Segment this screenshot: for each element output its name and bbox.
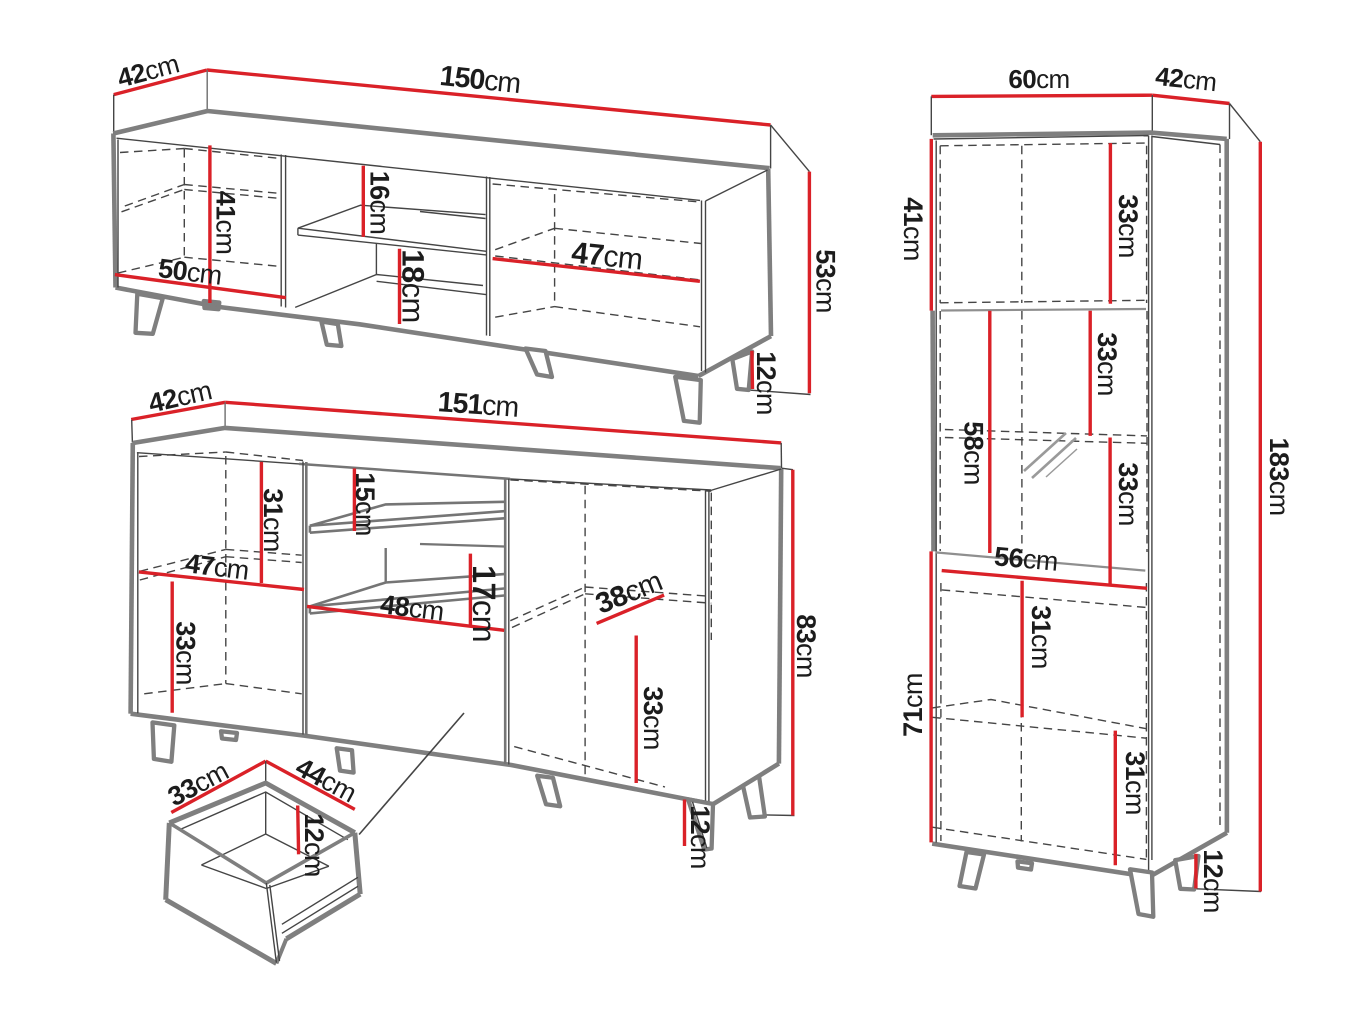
svg-text:16cm: 16cm <box>365 171 395 235</box>
svg-text:33cm: 33cm <box>638 686 668 750</box>
svg-text:71cm: 71cm <box>898 673 928 737</box>
svg-text:41cm: 41cm <box>898 197 928 261</box>
svg-text:31cm: 31cm <box>1026 605 1056 669</box>
svg-text:83cm: 83cm <box>791 614 821 678</box>
svg-text:12cm: 12cm <box>685 805 715 869</box>
svg-text:18cm: 18cm <box>396 249 431 322</box>
svg-text:60cm: 60cm <box>1008 64 1069 94</box>
svg-text:33cm: 33cm <box>171 621 201 685</box>
svg-text:31cm: 31cm <box>258 488 288 552</box>
svg-text:12cm: 12cm <box>299 813 329 877</box>
svg-text:33cm: 33cm <box>1092 332 1122 396</box>
svg-text:41cm: 41cm <box>211 191 241 255</box>
svg-text:12cm: 12cm <box>1198 849 1228 913</box>
svg-text:183cm: 183cm <box>1264 437 1294 515</box>
svg-text:31cm: 31cm <box>1120 751 1150 815</box>
svg-text:33cm: 33cm <box>1113 194 1143 258</box>
svg-text:12cm: 12cm <box>751 351 781 415</box>
svg-text:15cm: 15cm <box>350 472 380 536</box>
svg-text:42cm: 42cm <box>1154 61 1218 97</box>
svg-text:151cm: 151cm <box>437 386 520 424</box>
svg-text:33cm: 33cm <box>1113 462 1143 526</box>
svg-text:58cm: 58cm <box>959 421 989 485</box>
svg-text:17cm: 17cm <box>466 565 502 642</box>
svg-text:56cm: 56cm <box>993 541 1059 576</box>
svg-text:53cm: 53cm <box>811 249 841 313</box>
